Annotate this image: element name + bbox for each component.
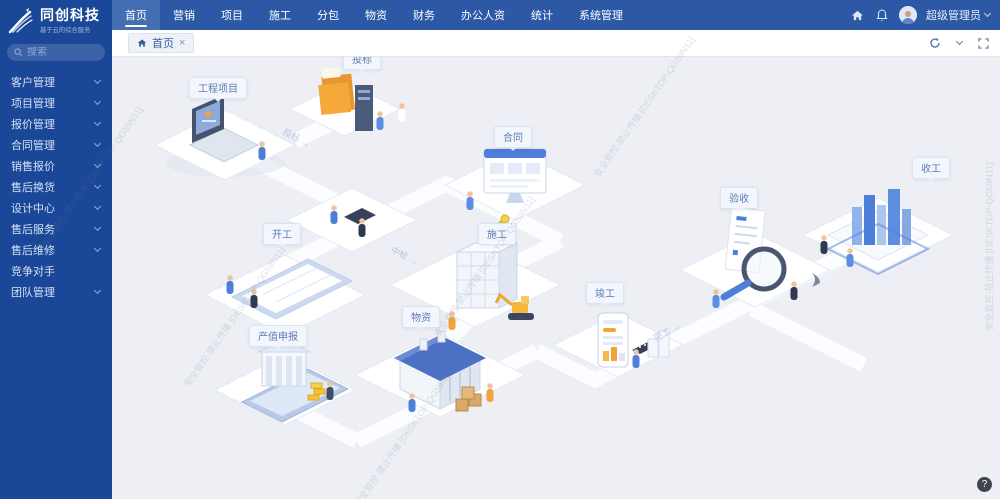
nav-marketing[interactable]: 营销 — [160, 0, 208, 30]
sidebar-search[interactable] — [7, 44, 105, 61]
home-icon — [137, 38, 147, 48]
user-avatar[interactable] — [899, 6, 917, 24]
sidebar-item-exchange[interactable]: 售后换货 — [0, 176, 112, 197]
nav-project[interactable]: 项目 — [208, 0, 256, 30]
chevron-down-icon — [94, 181, 101, 188]
home-icon[interactable] — [849, 7, 865, 23]
nav-system[interactable]: 系统管理 — [566, 0, 636, 30]
chevron-down-icon — [94, 223, 101, 230]
sidebar-item-design-center[interactable]: 设计中心 — [0, 197, 112, 218]
tab-bar: 首页 × — [112, 30, 1000, 57]
bell-icon[interactable] — [874, 7, 890, 23]
sidebar-item-repair[interactable]: 售后维修 — [0, 239, 112, 260]
chevron-down-icon — [94, 118, 101, 125]
label-acceptance: 验收 — [720, 187, 758, 209]
sidebar-menu: 客户管理 项目管理 报价管理 合同管理 销售报价 售后换货 设计中心 售后服务 … — [0, 71, 112, 302]
sidebar-item-sales-quote[interactable]: 销售报价 — [0, 155, 112, 176]
user-menu[interactable]: 超级管理员 — [926, 7, 990, 23]
label-handover: 收工 — [912, 157, 950, 179]
nav-construction[interactable]: 施工 — [256, 0, 304, 30]
sidebar: 同创科技 基于云的综合服务 客户管理 项目管理 报价管理 合同管理 销售报价 售… — [0, 0, 112, 499]
chevron-down-icon — [94, 139, 101, 146]
chevron-down-icon — [94, 244, 101, 251]
nav-subcontract[interactable]: 分包 — [304, 0, 352, 30]
tab-close-icon[interactable]: × — [179, 38, 185, 49]
sidebar-item-quotation[interactable]: 报价管理 — [0, 113, 112, 134]
chevron-down-icon — [94, 97, 101, 104]
logo: 同创科技 基于云的综合服务 — [0, 0, 112, 38]
chevron-down-icon — [94, 160, 101, 167]
label-output: 产值申报 — [249, 325, 307, 347]
sidebar-item-after-sales[interactable]: 售后服务 — [0, 218, 112, 239]
sidebar-item-project[interactable]: 项目管理 — [0, 92, 112, 113]
sidebar-item-customer[interactable]: 客户管理 — [0, 71, 112, 92]
chevron-down-icon — [984, 10, 991, 17]
search-icon — [14, 48, 23, 57]
chevron-down-icon — [94, 76, 101, 83]
app-tagline: 基于云的综合服务 — [40, 26, 94, 35]
help-button[interactable]: ? — [977, 477, 992, 492]
label-bid: 投标 — [343, 57, 381, 70]
tab-dropdown-icon[interactable] — [952, 36, 966, 50]
label-completion: 竣工 — [586, 282, 624, 304]
sidebar-item-competitors[interactable]: 竞争对手 — [0, 260, 112, 281]
chevron-down-icon — [94, 286, 101, 293]
label-materials: 物资 — [402, 306, 440, 328]
workflow-illustration — [112, 57, 1000, 498]
dashboard-canvas: 工程项目 投标 合同 开工 施工 物资 产值申报 竣工 验收 收工 投标 → 中… — [112, 57, 1000, 498]
app-window: 同创科技 基于云的综合服务 客户管理 项目管理 报价管理 合同管理 销售报价 售… — [0, 0, 1000, 499]
label-construct: 施工 — [478, 223, 516, 245]
top-nav: 首页 营销 项目 施工 分包 物资 财务 办公人资 统计 系统管理 — [112, 0, 636, 30]
sidebar-item-contract[interactable]: 合同管理 — [0, 134, 112, 155]
brand-logo-icon — [6, 6, 36, 36]
nav-materials[interactable]: 物资 — [352, 0, 400, 30]
label-kickoff: 开工 — [263, 223, 301, 245]
sidebar-item-team[interactable]: 团队管理 — [0, 281, 112, 302]
top-header: 首页 营销 项目 施工 分包 物资 财务 办公人资 统计 系统管理 — [112, 0, 1000, 30]
refresh-icon[interactable] — [928, 36, 942, 50]
fullscreen-icon[interactable] — [976, 36, 990, 50]
app-name: 同创科技 — [40, 7, 100, 23]
chevron-down-icon — [94, 202, 101, 209]
search-input[interactable] — [27, 47, 97, 58]
nav-office-hr[interactable]: 办公人资 — [448, 0, 518, 30]
label-contract: 合同 — [494, 126, 532, 148]
tab-home[interactable]: 首页 × — [128, 33, 194, 53]
nav-finance[interactable]: 财务 — [400, 0, 448, 30]
nav-home[interactable]: 首页 — [112, 0, 160, 30]
nav-statistics[interactable]: 统计 — [518, 0, 566, 30]
label-project: 工程项目 — [189, 77, 247, 99]
